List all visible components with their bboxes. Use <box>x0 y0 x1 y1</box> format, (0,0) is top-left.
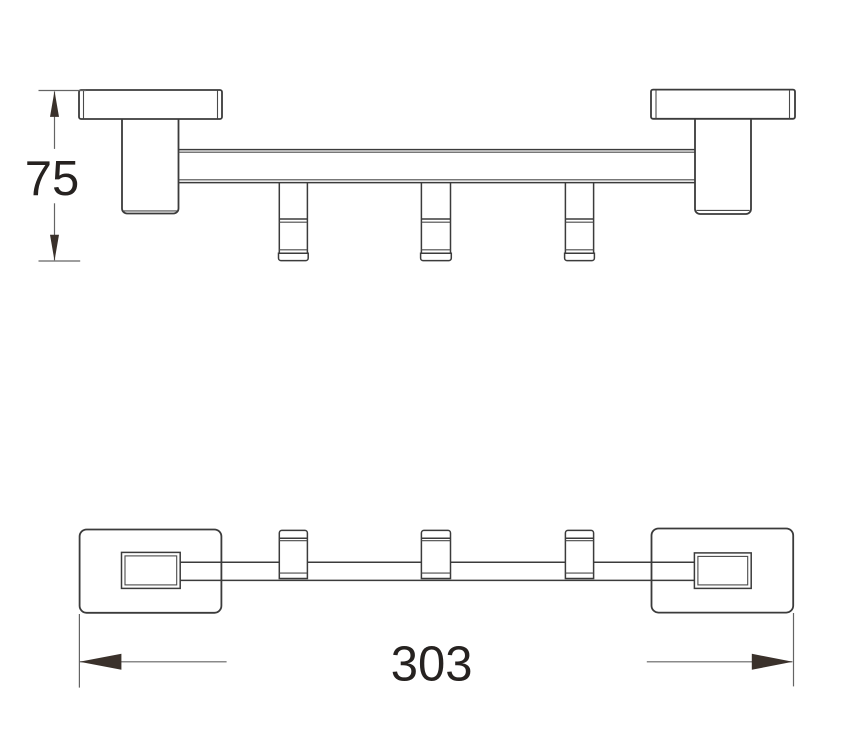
svg-text:75: 75 <box>25 152 80 206</box>
svg-text:303: 303 <box>391 638 473 692</box>
